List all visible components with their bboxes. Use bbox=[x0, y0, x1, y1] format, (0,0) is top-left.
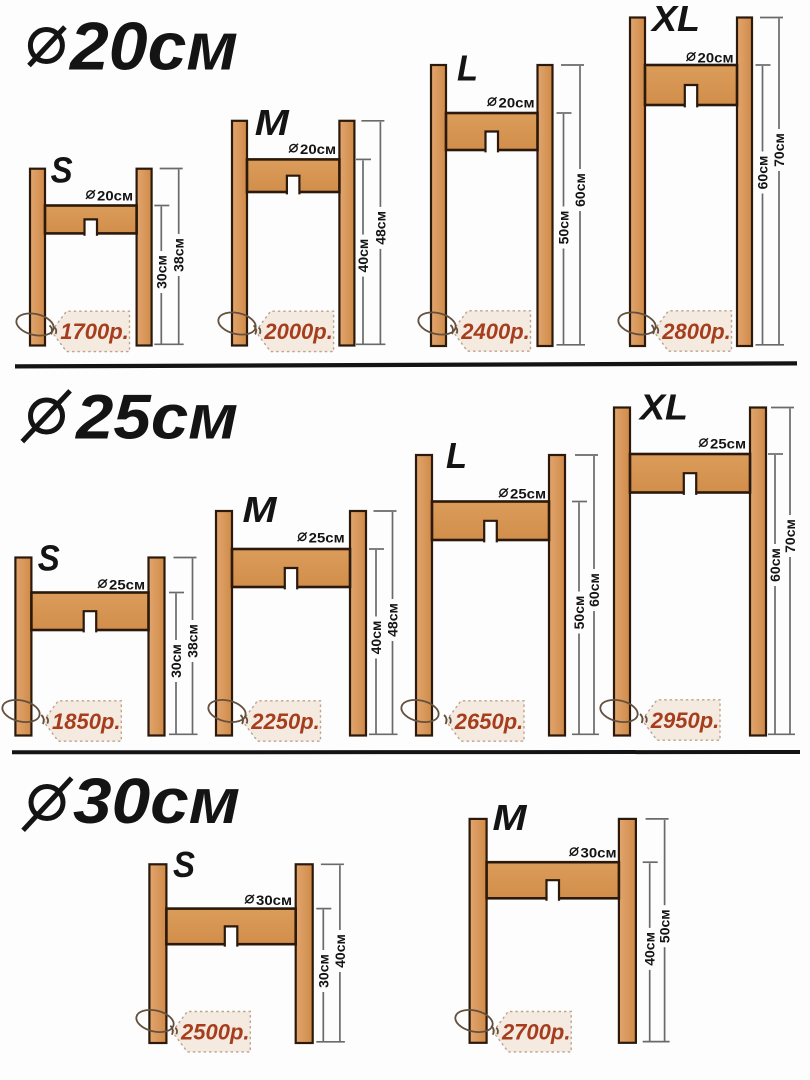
svg-text:48см: 48см bbox=[372, 211, 388, 245]
svg-text:M: M bbox=[493, 797, 528, 838]
svg-text:S: S bbox=[38, 538, 60, 579]
svg-text:2000р.: 2000р. bbox=[263, 319, 333, 344]
svg-text:40см: 40см bbox=[368, 621, 384, 655]
svg-text:25см: 25см bbox=[309, 530, 345, 546]
svg-text:2800р.: 2800р. bbox=[661, 319, 731, 344]
svg-text:38см: 38см bbox=[171, 238, 187, 272]
svg-text:50см: 50см bbox=[657, 909, 673, 943]
svg-text:48см: 48см bbox=[385, 603, 401, 637]
svg-text:XL: XL bbox=[638, 386, 688, 427]
svg-text:30см: 30см bbox=[256, 892, 292, 908]
svg-text:20см: 20см bbox=[97, 187, 133, 203]
svg-text:70см: 70см bbox=[782, 519, 798, 553]
svg-text:M: M bbox=[255, 102, 290, 143]
svg-text:25см: 25см bbox=[510, 486, 546, 502]
svg-text:2400р.: 2400р. bbox=[460, 319, 530, 344]
svg-text:60см: 60см bbox=[572, 173, 588, 207]
svg-text:2250р.: 2250р. bbox=[250, 709, 320, 734]
svg-text:30см: 30см bbox=[153, 255, 169, 289]
svg-text:2650р.: 2650р. bbox=[454, 709, 524, 734]
svg-text:S: S bbox=[51, 150, 73, 191]
svg-text:2700р.: 2700р. bbox=[501, 1020, 571, 1045]
svg-text:20см: 20см bbox=[68, 9, 238, 85]
svg-text:30см: 30см bbox=[73, 765, 240, 837]
svg-text:30см: 30см bbox=[315, 954, 331, 988]
svg-text:30см: 30см bbox=[168, 644, 184, 678]
svg-text:20см: 20см bbox=[698, 50, 734, 66]
svg-text:50см: 50см bbox=[556, 211, 572, 245]
svg-text:60см: 60см bbox=[767, 548, 783, 582]
svg-text:70см: 70см bbox=[771, 133, 787, 167]
svg-text:M: M bbox=[243, 489, 278, 530]
svg-text:2500р.: 2500р. bbox=[180, 1020, 250, 1045]
svg-text:2950р.: 2950р. bbox=[650, 708, 720, 733]
svg-text:40см: 40см bbox=[642, 932, 658, 966]
svg-text:40см: 40см bbox=[332, 934, 348, 968]
svg-text:50см: 50см bbox=[571, 596, 587, 630]
svg-text:XL: XL bbox=[650, 0, 700, 39]
svg-text:25см: 25см bbox=[75, 383, 238, 453]
svg-text:25см: 25см bbox=[710, 436, 746, 452]
svg-text:60см: 60см bbox=[755, 156, 771, 190]
svg-text:L: L bbox=[446, 435, 467, 476]
svg-text:L: L bbox=[457, 48, 478, 89]
svg-text:20см: 20см bbox=[300, 141, 336, 157]
svg-text:38см: 38см bbox=[185, 624, 201, 658]
svg-text:25см: 25см bbox=[109, 577, 145, 593]
svg-text:1700р.: 1700р. bbox=[60, 319, 129, 344]
svg-text:40см: 40см bbox=[355, 239, 371, 273]
svg-text:1850р.: 1850р. bbox=[52, 709, 121, 734]
svg-text:60см: 60см bbox=[586, 573, 602, 607]
svg-text:S: S bbox=[173, 844, 195, 885]
svg-text:30см: 30см bbox=[581, 845, 617, 861]
svg-text:20см: 20см bbox=[499, 95, 535, 111]
